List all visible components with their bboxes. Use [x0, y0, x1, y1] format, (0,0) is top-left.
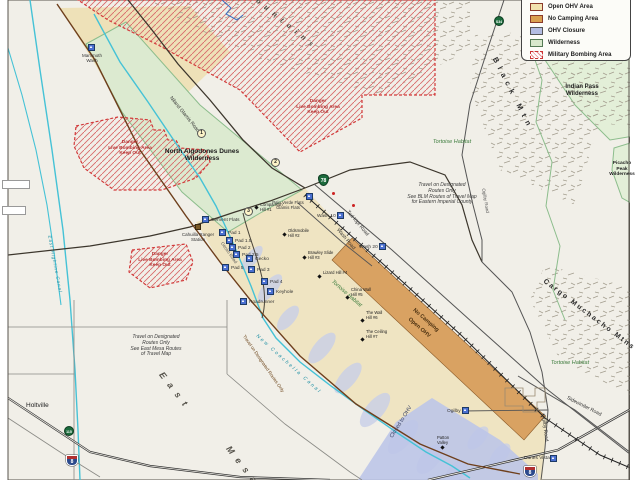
- campground-icon: [240, 298, 247, 305]
- map-page: Mountains Black Mtn Cargo Muchacho Mtns …: [0, 0, 640, 480]
- east-mesa-travel-note: Travel on DesignatedRoutes OnlySee East …: [110, 335, 202, 358]
- camp-label: Cement Flats: [211, 218, 240, 224]
- right-margin: [630, 0, 640, 480]
- wilderness-swatch: [530, 39, 543, 47]
- danger-label: DangerLive Bombing AreaKeep Out: [128, 252, 192, 269]
- campground-icon: [248, 266, 255, 273]
- map-canvas: [0, 0, 640, 480]
- hill-label: Brawley SlideHill #3: [308, 250, 333, 260]
- campground-icon: [246, 255, 253, 262]
- legend: Open OHV Area No Camping Area OHV Closur…: [521, 0, 631, 61]
- campground-icon: [306, 193, 313, 200]
- map-note-marker-2: 2: [271, 158, 280, 167]
- danger-label: DangerLive Bombing AreaKeep Out: [96, 140, 164, 157]
- campground-icon: [219, 229, 226, 236]
- camp-label: Keyhole: [276, 290, 293, 296]
- legend-label: No Camping Area: [548, 16, 598, 22]
- poi-marker: [352, 204, 355, 207]
- hill-label: PattonValley: [437, 435, 449, 445]
- interstate-8-shield: 8: [66, 455, 78, 466]
- campground-icon: [233, 251, 240, 258]
- ohv-closure-swatch: [530, 27, 543, 35]
- holtville-label: Holtville: [26, 402, 49, 409]
- hill-label: Lizard Hill #4: [323, 270, 347, 275]
- poi-marker: [332, 192, 335, 195]
- algodones-wilderness-label: North Algodones DunesWilderness: [150, 148, 254, 163]
- ranger-station-icon: [195, 224, 201, 230]
- camp-label: Dunes Vista: [524, 456, 550, 462]
- campground-icon: [462, 407, 469, 414]
- campground-icon: [229, 244, 236, 251]
- legend-label: Military Bombing Area: [548, 52, 611, 58]
- hill-label: China WallHill #5: [351, 287, 371, 297]
- campground-icon: [202, 216, 209, 223]
- campground-icon: [379, 243, 386, 250]
- left-margin: [0, 0, 8, 480]
- hill-label: The WallHill #6: [366, 310, 382, 320]
- interstate-8-shield: 8: [524, 466, 536, 477]
- camp-label: Pad 4: [270, 280, 283, 286]
- camp-label: Pad 3: [257, 268, 270, 274]
- open-ohv-swatch: [530, 3, 543, 11]
- camp-label: Roadrunner: [249, 300, 274, 306]
- campground-icon: [222, 264, 229, 271]
- county-route-s34-shield: S34: [494, 16, 504, 26]
- vista-point-icon: [550, 455, 557, 462]
- hill-label: The CeilingHill #7: [366, 329, 387, 339]
- hill-label: OldsmobileHill #2: [288, 228, 309, 238]
- road-label-box: [2, 206, 26, 215]
- legend-label: OHV Closure: [548, 28, 585, 34]
- hill-label: ComparisonHill #1: [260, 202, 283, 212]
- indian-pass-label: Indian Pass Wilderness: [550, 84, 614, 98]
- legend-label: Wilderness: [548, 40, 580, 46]
- danger-label: DangerLive Bombing AreaKeep Out: [283, 99, 353, 116]
- camp-label: Pad 1.5: [235, 239, 252, 245]
- camp-label: Wash 10: [317, 214, 336, 220]
- tortoise-habitat-label: Tortoise Habitat: [432, 139, 472, 145]
- camp-label: Ogilby: [447, 409, 461, 415]
- highway-115-shield: 115: [64, 426, 74, 436]
- camp-label: Pad 5: [231, 266, 244, 272]
- no-camping-swatch: [530, 15, 543, 23]
- campground-icon: [226, 237, 233, 244]
- camp-label: Cahuilla Ranger Station: [178, 232, 218, 242]
- map-note-marker-1: 1: [197, 129, 206, 138]
- camp-label: Gecko: [255, 257, 269, 263]
- picacho-label: PicachoPeakWilderness: [604, 161, 640, 178]
- camp-label: Wash 20: [359, 245, 378, 251]
- legend-label: Open OHV Area: [548, 4, 593, 10]
- military-bombing-swatch: [530, 51, 543, 59]
- campground-icon: [267, 288, 274, 295]
- camp-label: Mammoth Wash: [78, 53, 106, 63]
- tortoise-habitat-label: Tortoise Habitat: [550, 360, 590, 366]
- campground-icon: [337, 212, 344, 219]
- blm-travel-note: Travel on DesignatedRoutes OnlySee BLM R…: [394, 183, 490, 206]
- camp-label: Pad 1: [228, 231, 241, 237]
- campground-icon: [88, 44, 95, 51]
- campground-icon: [261, 278, 268, 285]
- map-note-marker-3: 3: [244, 207, 253, 216]
- road-label-box: [2, 180, 30, 189]
